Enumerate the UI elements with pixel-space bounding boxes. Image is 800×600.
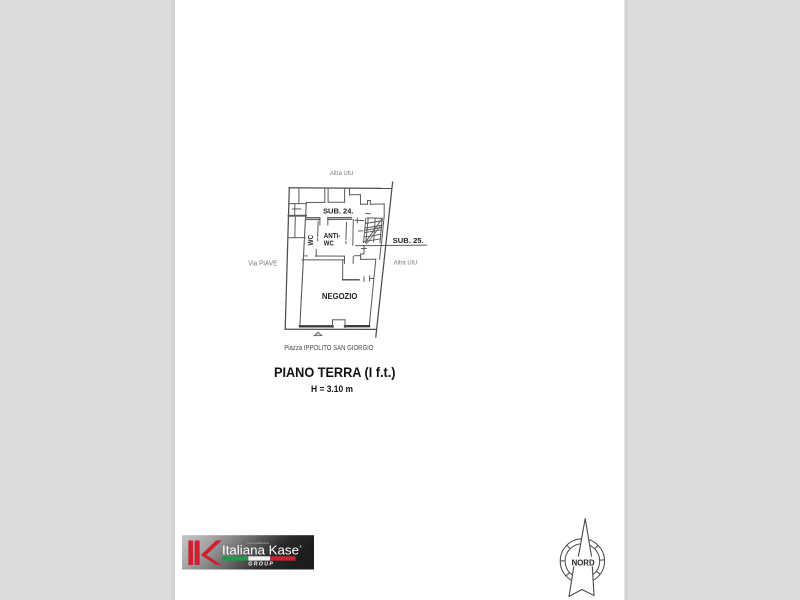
- svg-text:WC: WC: [324, 241, 334, 248]
- svg-text:H = 3.10 m: H = 3.10 m: [311, 384, 353, 394]
- svg-text:Altra UIU: Altra UIU: [394, 260, 418, 267]
- svg-text:Via PIAVE: Via PIAVE: [248, 261, 278, 268]
- svg-text:SUB. 24.: SUB. 24.: [323, 206, 354, 215]
- svg-text:G R O U P: G R O U P: [248, 562, 273, 568]
- svg-text:NEGOZIO: NEGOZIO: [322, 292, 358, 301]
- svg-text:PIANO TERRA (I f.t.): PIANO TERRA (I f.t.): [274, 365, 396, 380]
- svg-text:®: ®: [299, 545, 302, 549]
- svg-text:WC: WC: [308, 235, 315, 246]
- svg-text:ANTI-: ANTI-: [324, 233, 341, 240]
- svg-text:SUB. 25.: SUB. 25.: [393, 236, 424, 245]
- svg-text:NORD: NORD: [572, 558, 595, 567]
- svg-text:Piazza IPPOLITO SAN GIORGIO: Piazza IPPOLITO SAN GIORGIO: [284, 343, 373, 352]
- svg-text:Altra UIU: Altra UIU: [330, 170, 354, 177]
- svg-text:Italiana Kase: Italiana Kase: [222, 544, 299, 558]
